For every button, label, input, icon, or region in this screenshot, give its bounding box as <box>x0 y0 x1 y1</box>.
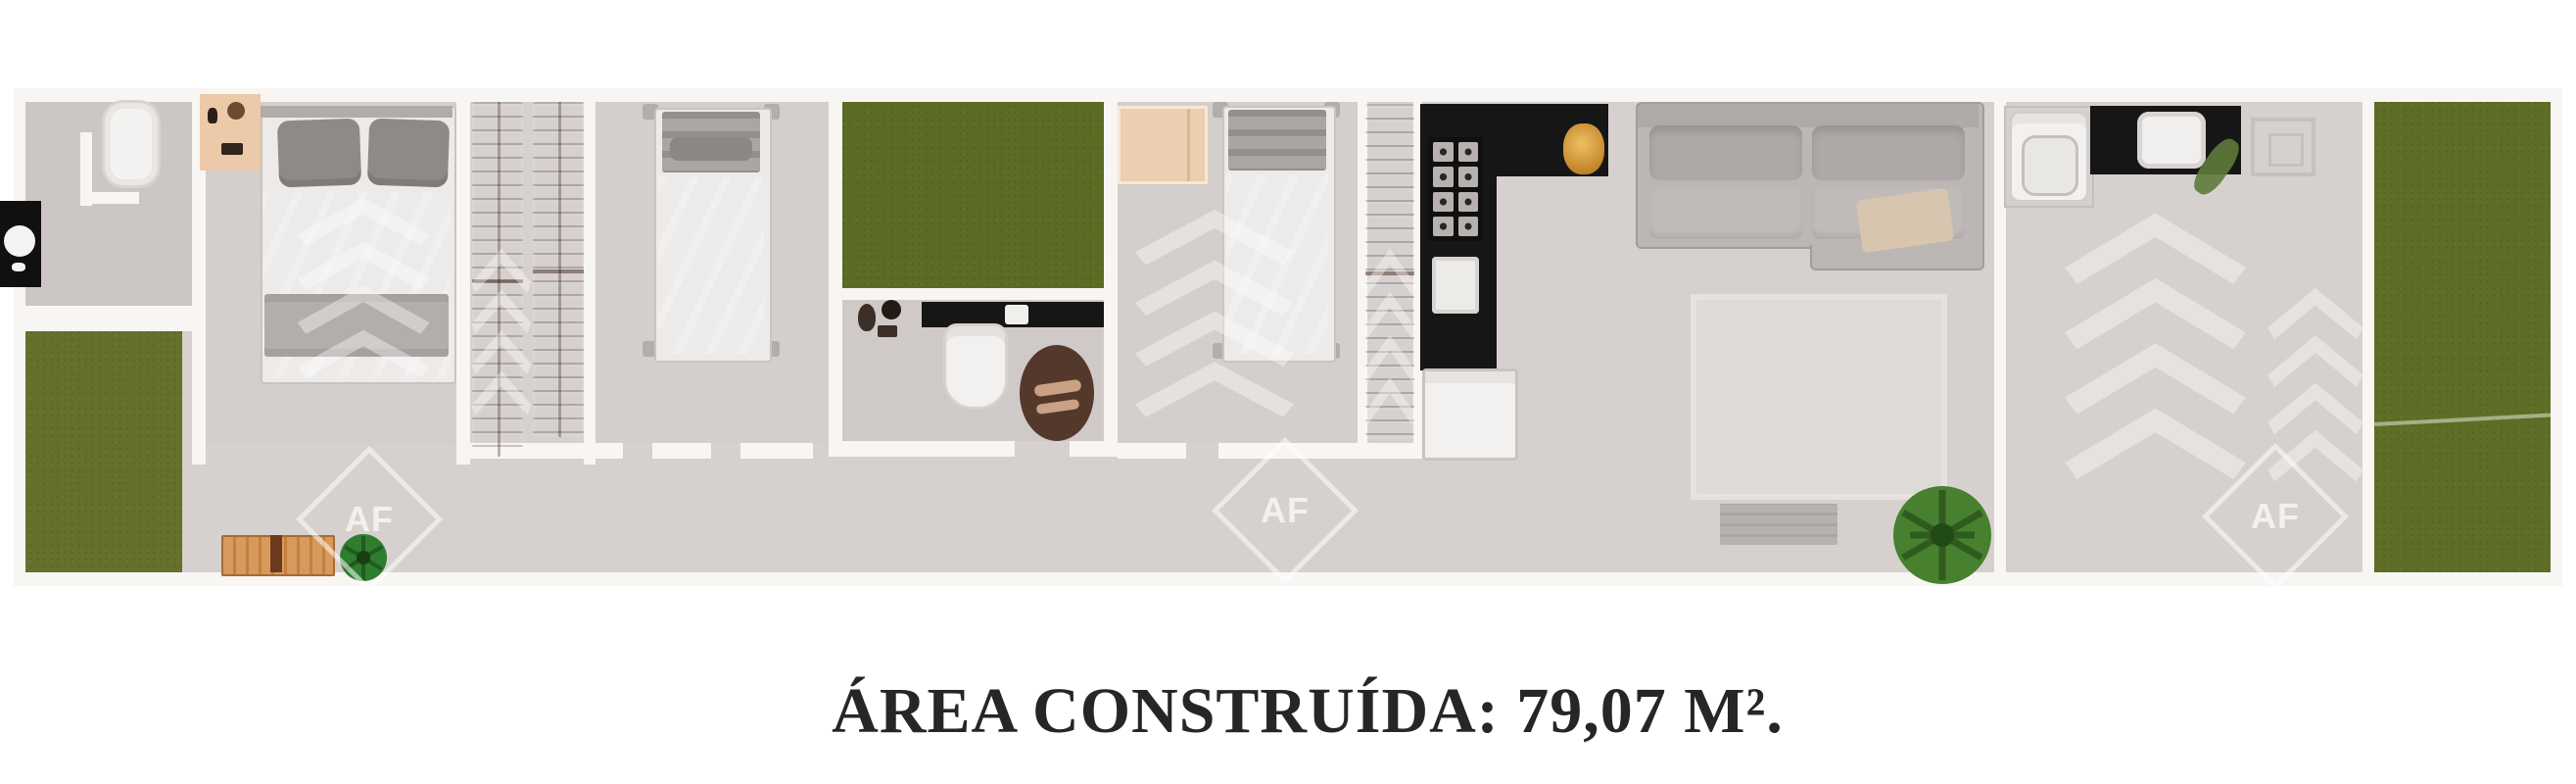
wood-bench-divider <box>270 535 282 572</box>
shower-head-icon <box>858 304 876 331</box>
burner <box>1433 192 1454 212</box>
tree-icon <box>1884 478 2000 592</box>
wall-closet-bed2 <box>584 88 596 465</box>
shower-box-glass-line <box>1187 109 1190 181</box>
single-bed-1-duvet <box>658 176 764 355</box>
wall-service-partition-h <box>80 192 139 204</box>
sofa-seat-cushion <box>1649 188 1802 239</box>
wardrobe-2 <box>533 102 584 437</box>
nightstand-vase <box>227 102 245 120</box>
patio-fixture <box>2251 118 2315 176</box>
living-rug <box>1691 294 1947 500</box>
burner <box>1458 167 1479 186</box>
shower-box <box>1118 106 1208 184</box>
wall-service-garden <box>14 306 206 331</box>
double-bed-pillow-right <box>367 119 450 188</box>
sofa-back-cushion <box>1812 125 1965 180</box>
sofa-back-cushion <box>1649 125 1802 180</box>
shower-drain-icon <box>878 325 897 337</box>
wall-bed12-bottom-c <box>740 443 813 459</box>
wall-left <box>14 88 25 586</box>
doormat <box>1720 504 1837 545</box>
laundry-sink-drain <box>12 263 25 271</box>
courtyard-grass <box>840 96 1105 290</box>
burner <box>1458 192 1479 212</box>
wall-top <box>14 88 2562 102</box>
double-bed-headboard <box>261 106 453 118</box>
nightstand-bottle <box>208 108 217 123</box>
shower-control-icon <box>882 300 901 319</box>
wardrobe-2-door-split <box>558 102 561 437</box>
sofa-chaise <box>1810 245 1984 270</box>
burner <box>1433 167 1454 186</box>
wall-bed12-bottom-b <box>652 443 711 459</box>
single-bed-2-headboard <box>1228 110 1326 171</box>
sofa-back-shadow <box>1638 104 1979 127</box>
chevron-watermark <box>290 196 437 392</box>
toilet <box>943 323 1008 410</box>
bathroom-sink <box>1005 305 1028 324</box>
burner <box>1433 142 1454 162</box>
wall-right <box>2551 88 2562 586</box>
burner <box>1458 217 1479 236</box>
wall-bath-bottom-b <box>1070 441 1118 457</box>
fruit-bowl <box>1563 123 1604 174</box>
stove-burners <box>1428 137 1483 241</box>
wall-courtyard-bath <box>829 288 1118 300</box>
wall-bed3-bottom-b <box>1218 443 1422 459</box>
kitchen-sink <box>1432 257 1479 314</box>
chevron-watermark <box>2055 211 2256 500</box>
nightstand-tray <box>221 143 243 155</box>
wall-bed3-bottom-a <box>1118 443 1186 459</box>
double-bed-pillow-left <box>277 119 361 188</box>
floor-plan-image: AF AF AF ÁREA CONSTRUÍDA: 79,07 M². <box>0 0 2576 784</box>
wall-bath-bottom-a <box>829 441 1015 457</box>
chevron-watermark <box>468 247 535 428</box>
burner <box>1433 217 1454 236</box>
laundry-tub <box>2137 112 2206 169</box>
right-lawn-grass <box>2374 100 2551 574</box>
single-bed-1-pillow <box>670 137 752 161</box>
laundry-sink-bowl <box>4 225 35 257</box>
wall-bed2-courtyard <box>829 88 842 457</box>
bathtub <box>102 100 161 188</box>
built-area-caption: ÁREA CONSTRUÍDA: 79,07 M². <box>39 674 2576 749</box>
chevron-watermark <box>1361 247 1418 438</box>
chevron-watermark <box>1126 208 1303 433</box>
burner <box>1458 142 1479 162</box>
left-garden-grass <box>14 329 182 572</box>
patio-fixture-inner <box>2268 133 2304 167</box>
washing-machine-drum <box>2022 135 2078 196</box>
wall-courtyard-bed3 <box>1104 88 1118 457</box>
fridge <box>1422 368 1518 461</box>
